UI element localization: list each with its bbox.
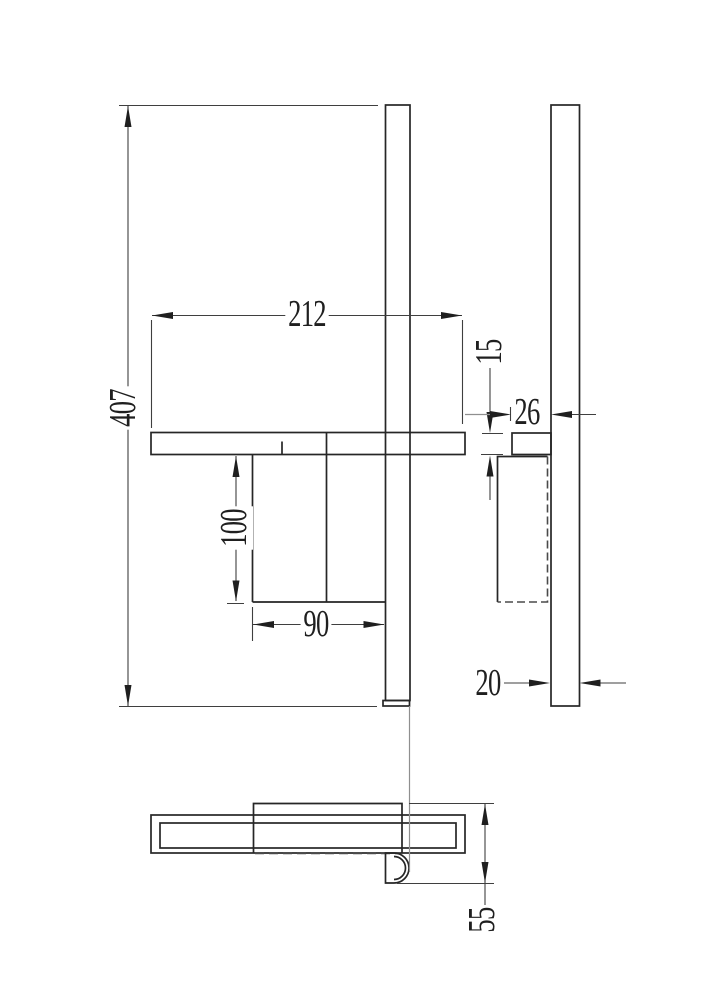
front-wall-rail xyxy=(386,105,411,701)
drawing-canvas xyxy=(0,0,707,1000)
dimension-label-shelf-depth: 26 xyxy=(514,393,539,431)
top-shelf-inner xyxy=(160,823,456,848)
dimension-label-shelf-length: 212 xyxy=(285,295,328,333)
arrow-left-icon xyxy=(551,411,572,418)
arrow-right-icon xyxy=(364,621,385,628)
arrow-up-icon xyxy=(487,456,494,477)
arrow-up-icon xyxy=(125,106,132,127)
arrow-left-icon xyxy=(580,680,601,687)
dimension-label-bracket-drop: 100 xyxy=(215,506,253,549)
top-hook-detail xyxy=(386,853,410,883)
arrow-down-icon xyxy=(482,862,489,883)
dimension-label-mount-depth: 55 xyxy=(463,907,501,932)
arrow-down-icon xyxy=(125,685,132,706)
top-bracket-outline xyxy=(254,804,403,854)
dim-rail-thickness xyxy=(504,680,626,687)
front-bracket-outline xyxy=(253,455,386,603)
side-shelf-bar xyxy=(512,433,551,455)
front-rail-end-cap xyxy=(383,701,410,707)
arrow-down-icon xyxy=(233,581,240,602)
arrow-up-icon xyxy=(233,456,240,477)
front-shelf-bar xyxy=(151,433,465,455)
arrow-up-icon xyxy=(482,804,489,825)
dim-mount-depth xyxy=(397,804,494,906)
dimension-label-rail-thickness: 20 xyxy=(475,664,500,702)
dim-shelf-thickness xyxy=(481,368,503,500)
arrow-right-icon xyxy=(490,411,511,418)
arrow-left-icon xyxy=(152,312,173,319)
dim-overall-height xyxy=(119,106,378,707)
arrow-right-icon xyxy=(441,312,462,319)
side-bracket-solid-edges xyxy=(498,457,548,603)
top-view xyxy=(151,804,465,884)
arrow-right-icon xyxy=(529,680,550,687)
side-wall-rail xyxy=(551,105,580,706)
dimension-label-shelf-thickness: 15 xyxy=(470,339,508,364)
technical-drawing-page: 407 212 15 26 100 90 20 55 xyxy=(0,0,707,1000)
side-bracket-hidden-edges xyxy=(498,457,548,603)
arrow-left-icon xyxy=(253,621,274,628)
dimension-label-overall-height: 407 xyxy=(104,386,142,429)
dimension-label-bracket-width: 90 xyxy=(301,605,332,643)
